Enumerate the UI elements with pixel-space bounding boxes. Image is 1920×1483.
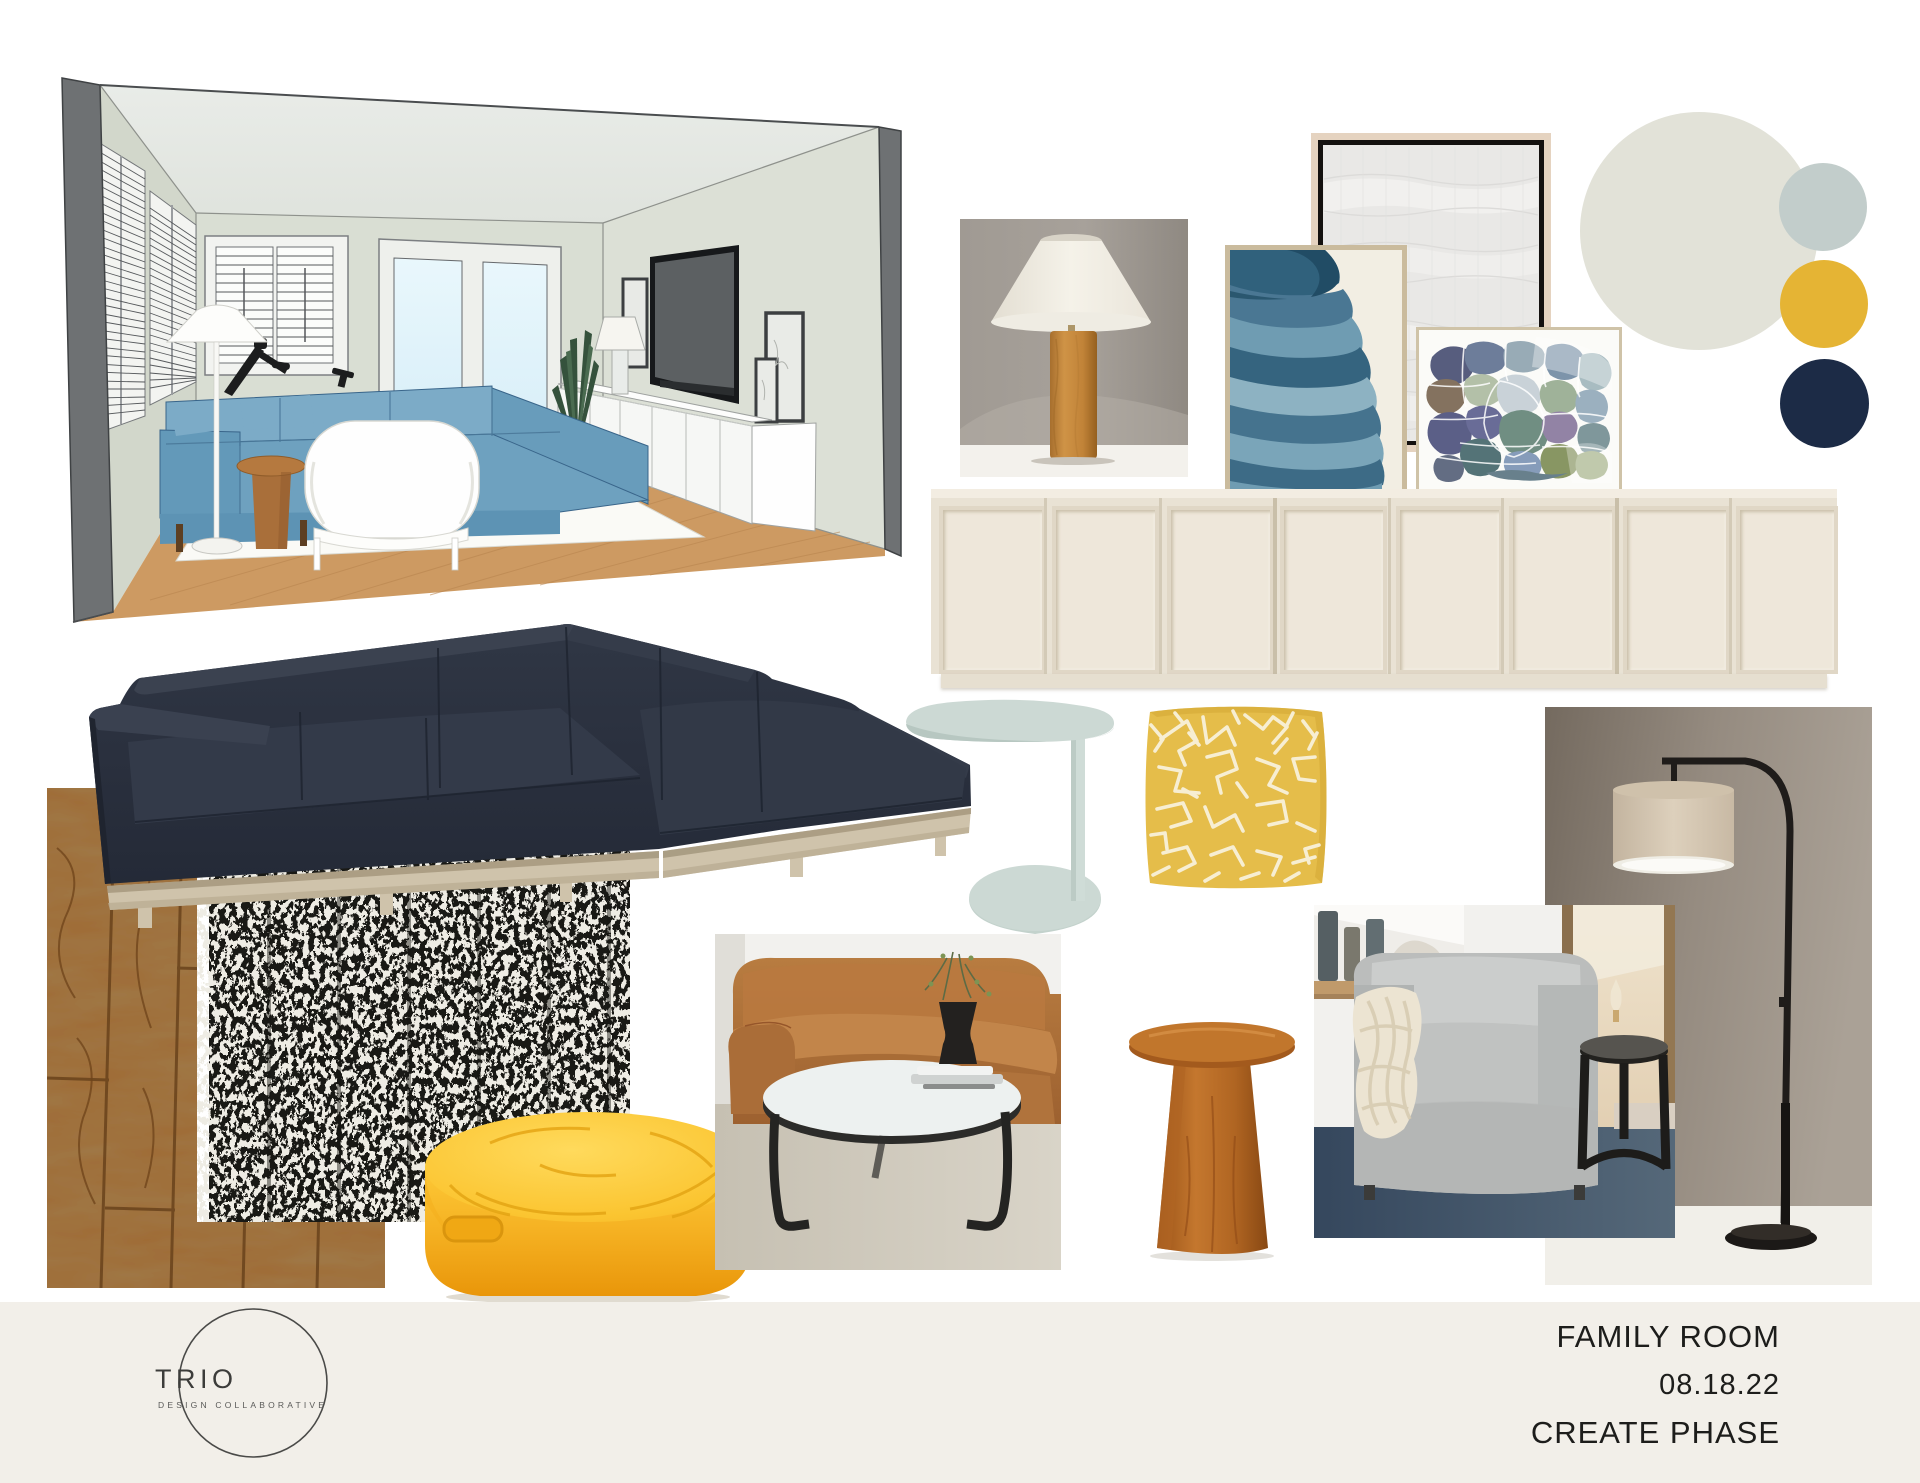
svg-text:DESIGN COLLABORATIVE: DESIGN COLLABORATIVE [158,1400,327,1410]
svg-text:TRIO: TRIO [155,1364,238,1394]
